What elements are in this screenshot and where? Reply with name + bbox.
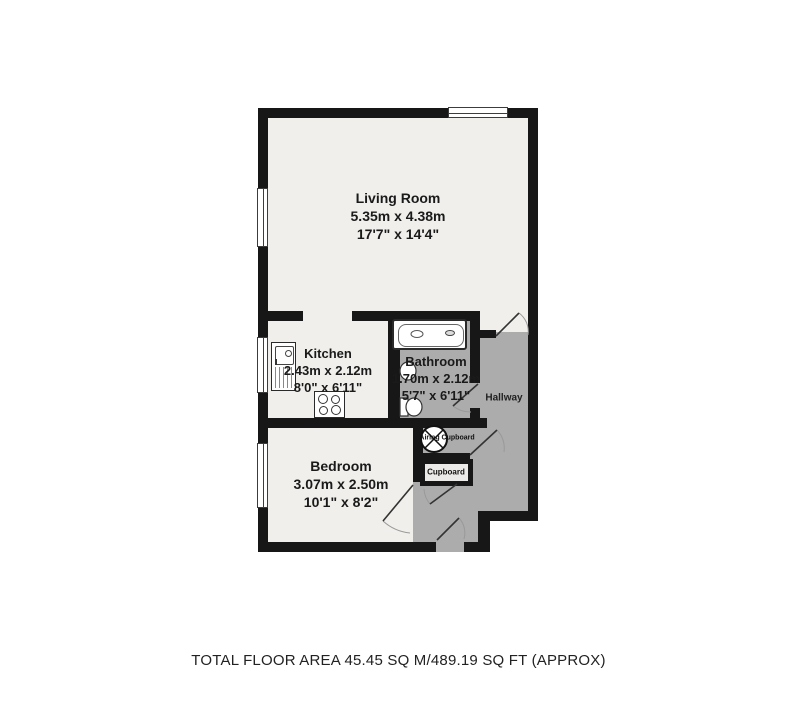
wall-right	[528, 108, 538, 521]
room-metric: 3.07m x 2.50m	[294, 475, 389, 493]
kitchen-sink-tap	[275, 359, 277, 365]
wall-hallway-top	[480, 330, 496, 338]
room-name: Bathroom	[392, 353, 480, 370]
cupboard-label: Cupboard	[427, 468, 465, 477]
room-name: Kitchen	[284, 345, 372, 362]
room-imperial: 8'0" x 6'11"	[284, 379, 372, 396]
airing-cupboard-label: Airing Cupboard	[419, 435, 474, 442]
window-pane-line	[263, 338, 264, 392]
floor-plan: Living Room 5.35m x 4.38m 17'7" x 14'4" …	[0, 0, 797, 725]
window-bedroom-left	[257, 443, 268, 508]
room-imperial: 5'7" x 6'11"	[392, 387, 480, 404]
bedroom-door-threshold	[413, 482, 423, 542]
window-pane-line	[263, 444, 264, 507]
room-name: Living Room	[351, 189, 446, 207]
window-pane-line	[263, 189, 264, 246]
room-metric: 5.35m x 4.38m	[351, 207, 446, 225]
hallway-floor-upper	[480, 332, 528, 511]
bathroom-label: Bathroom 1.70m x 2.12m 5'7" x 6'11"	[392, 353, 480, 404]
living-room-label: Living Room 5.35m x 4.38m 17'7" x 14'4"	[351, 189, 446, 243]
kitchen-label: Kitchen 2.43m x 2.12m 8'0" x 6'11"	[284, 345, 372, 396]
wall-kitchen-bottom	[258, 418, 487, 428]
outside-area	[490, 521, 538, 552]
room-imperial: 10'1" x 8'2"	[294, 493, 389, 511]
wall-bottom	[258, 542, 436, 552]
window-living-left	[257, 188, 268, 247]
room-metric: 2.43m x 2.12m	[284, 362, 372, 379]
entrance-threshold	[436, 542, 464, 552]
room-imperial: 17'7" x 14'4"	[351, 225, 446, 243]
bedroom-label: Bedroom 3.07m x 2.50m 10'1" x 8'2"	[294, 457, 389, 511]
bathtub-inner	[398, 324, 464, 347]
hob-burner	[319, 406, 328, 415]
window-kitchen-left	[257, 337, 268, 393]
hob-burner	[331, 405, 341, 415]
hob-burner	[331, 395, 340, 404]
total-floor-area-text: TOTAL FLOOR AREA 45.45 SQ M/489.19 SQ FT…	[0, 652, 797, 669]
window-pane-line	[449, 113, 507, 114]
wall-bottom-right-piece	[464, 542, 490, 552]
hallway-label: Hallway	[485, 393, 522, 404]
window-top	[448, 107, 508, 118]
bathtub	[392, 319, 467, 350]
room-name: Bedroom	[294, 457, 389, 475]
wall-living-divider-left	[258, 311, 303, 321]
room-metric: 1.70m x 2.12m	[392, 370, 480, 387]
